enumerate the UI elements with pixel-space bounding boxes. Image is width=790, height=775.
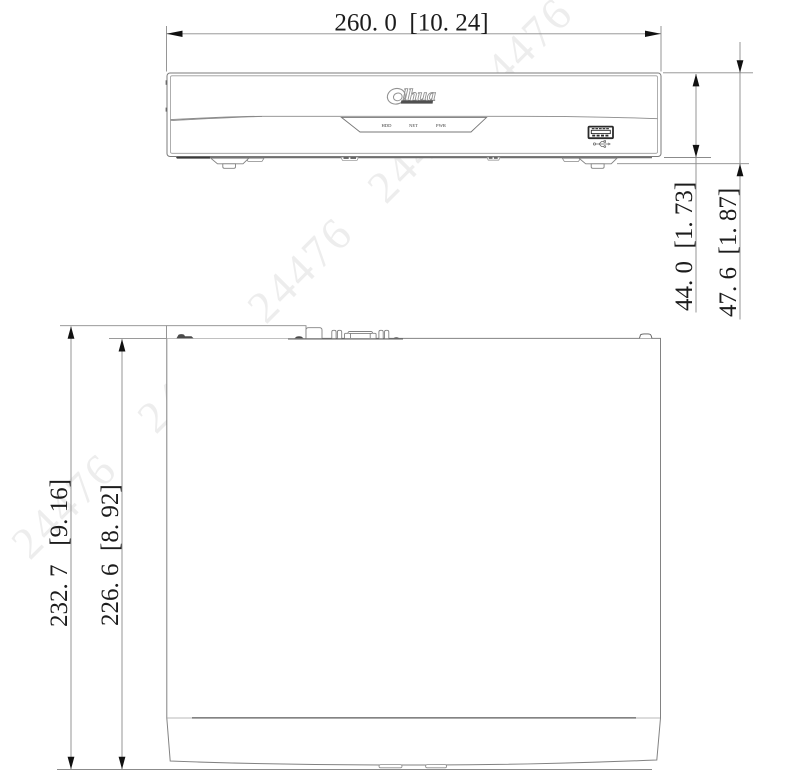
svg-text:47. 6 [1. 87]: 47. 6 [1. 87] <box>715 188 742 317</box>
svg-text:PWR: PWR <box>436 123 447 128</box>
svg-text:HDD: HDD <box>382 123 393 128</box>
svg-text:24476: 24476 <box>238 207 364 333</box>
svg-text:NET: NET <box>409 123 418 128</box>
svg-text:44. 0 [1. 73]: 44. 0 [1. 73] <box>671 182 698 311</box>
svg-text:260. 0 [10. 24]: 260. 0 [10. 24] <box>334 10 488 37</box>
svg-text:232. 7 [9. 16]: 232. 7 [9. 16] <box>46 479 73 627</box>
svg-text:226. 6 [8. 92]: 226. 6 [8. 92] <box>97 484 124 626</box>
